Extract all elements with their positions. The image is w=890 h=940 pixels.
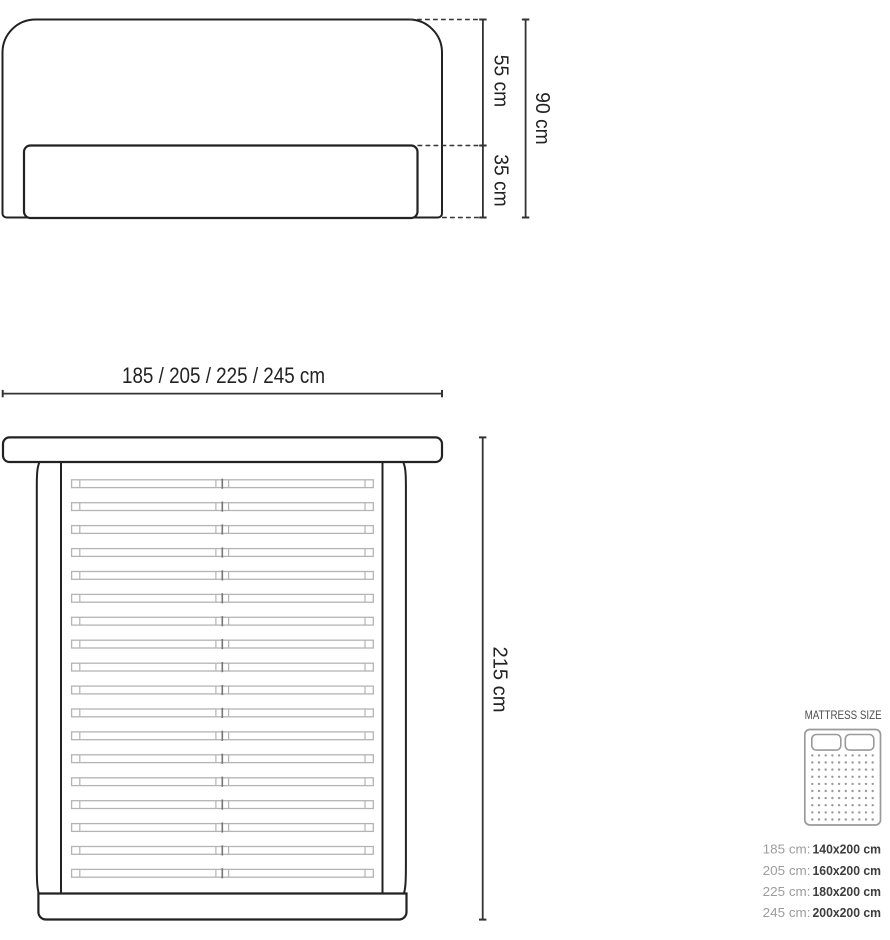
svg-text:MATTRESS SIZE: MATTRESS SIZE bbox=[805, 708, 882, 722]
svg-text:205 cm:: 205 cm: bbox=[763, 864, 811, 878]
svg-text:225 cm:: 225 cm: bbox=[763, 885, 811, 899]
svg-text:35 cm: 35 cm bbox=[490, 154, 512, 207]
svg-text:90 cm: 90 cm bbox=[531, 92, 553, 145]
svg-text:185 cm:: 185 cm: bbox=[763, 843, 811, 857]
svg-text:55 cm: 55 cm bbox=[490, 55, 512, 108]
svg-text:140x200 cm: 140x200 cm bbox=[813, 843, 882, 857]
svg-text:245 cm:: 245 cm: bbox=[763, 906, 811, 920]
svg-text:185 / 205 / 225 / 245 cm: 185 / 205 / 225 / 245 cm bbox=[122, 363, 325, 388]
svg-text:160x200 cm: 160x200 cm bbox=[813, 864, 882, 878]
svg-text:200x200 cm: 200x200 cm bbox=[813, 906, 882, 920]
svg-text:180x200 cm: 180x200 cm bbox=[813, 885, 882, 899]
svg-text:215 cm: 215 cm bbox=[489, 647, 511, 713]
